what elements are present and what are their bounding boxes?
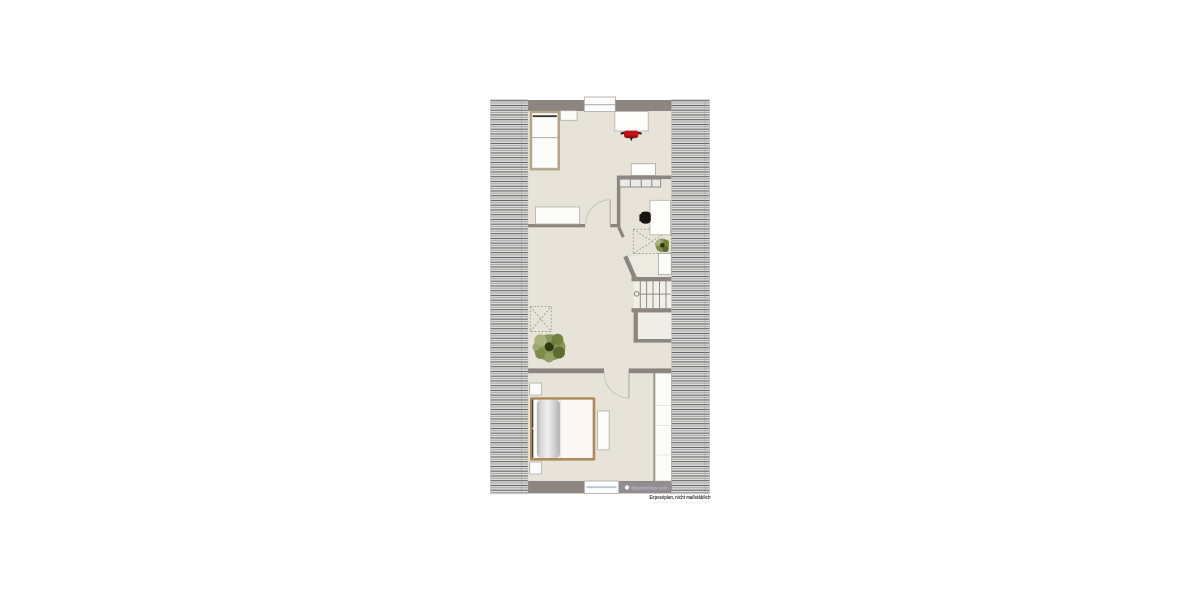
svg-text:Blueprintsolutions GmbH: Blueprintsolutions GmbH xyxy=(632,485,669,490)
svg-text:erstellt mit Grundriss-Service: erstellt mit Grundriss-Service, Angaben … xyxy=(653,501,711,505)
